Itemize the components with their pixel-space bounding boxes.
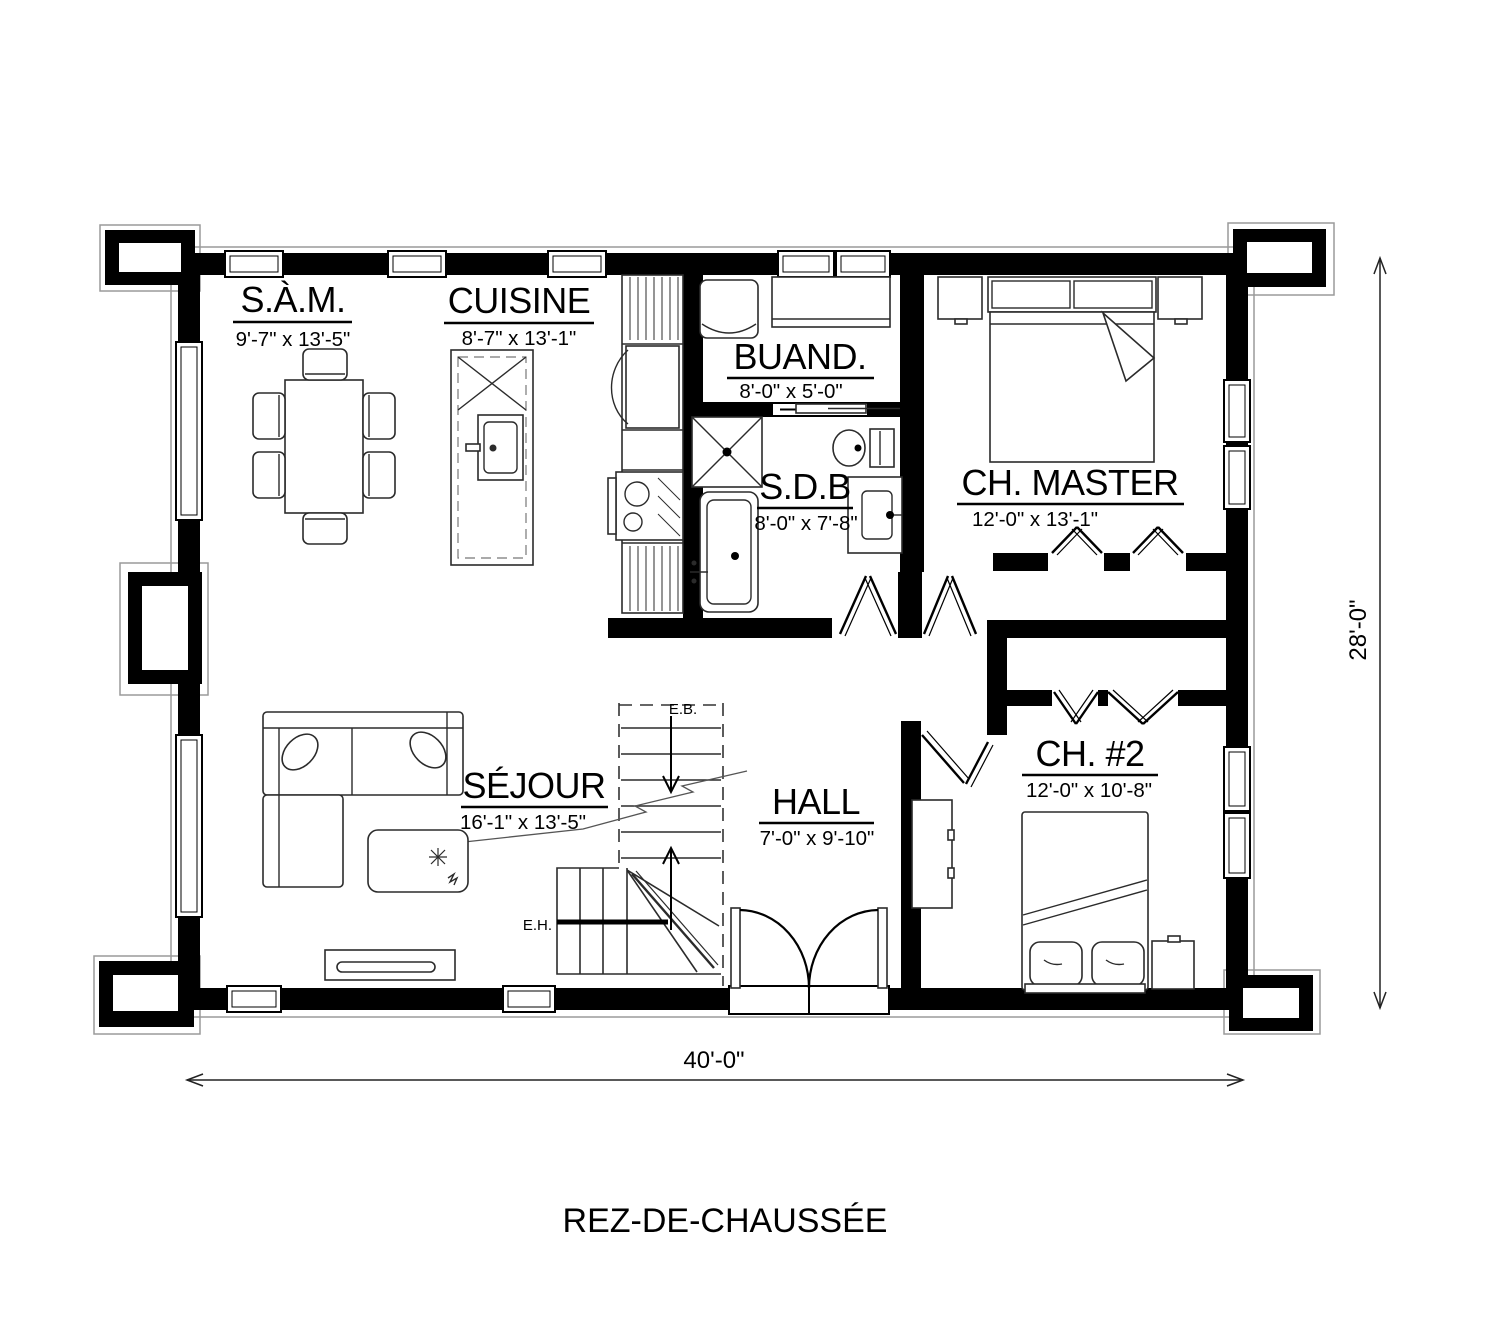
nightstand — [1158, 277, 1202, 324]
master-door-icon — [924, 576, 976, 636]
room-label-sdb: S.D.B — [759, 466, 851, 507]
width-dim-label: 40'-0" — [683, 1047, 744, 1074]
floor-plan-drawing: S.À.M. 9'-7" x 13'-5" CUISINE 8'-7" x 13… — [0, 0, 1500, 1320]
desk-icon — [912, 800, 954, 908]
bathtub-icon — [690, 492, 758, 612]
living-room-furniture — [263, 712, 468, 980]
depth-dim-label: 28'-0" — [1345, 599, 1372, 660]
stair-down-label: E.B. — [669, 701, 697, 718]
tv-console-icon — [325, 950, 455, 980]
room-label-sejour: SÉJOUR — [462, 765, 605, 806]
room-dims-ch2: 12'-0" x 10'-8" — [1026, 779, 1152, 802]
room-dims-master: 12'-0" x 13'-1" — [972, 508, 1098, 531]
window-icon — [1224, 813, 1250, 878]
closet-bifold-icon — [1054, 690, 1178, 724]
master-bedroom-furniture — [938, 277, 1202, 462]
room-dims-sdb: 8'-0" x 7'-8" — [754, 512, 857, 535]
kitchen-island — [451, 350, 533, 565]
window-icon — [836, 251, 890, 277]
window-icon — [778, 251, 834, 277]
nightstand — [938, 277, 982, 324]
room-label-sam: S.À.M. — [240, 279, 345, 320]
coffee-table-icon — [368, 830, 468, 892]
laundry-counter — [772, 277, 890, 327]
window-icon — [227, 986, 281, 1012]
toilet-icon — [833, 429, 894, 467]
staircase — [455, 703, 747, 986]
room-dims-hall: 7'-0" x 9'-10" — [760, 827, 875, 850]
room-label-buand: BUAND. — [733, 336, 866, 377]
nightstand — [1152, 936, 1194, 989]
room-dims-cuisine: 8'-7" x 13'-1" — [462, 327, 577, 350]
window-icon — [1224, 446, 1250, 509]
window-icon — [176, 342, 202, 520]
plan-title: REZ-DE-CHAUSSÉE — [563, 1202, 888, 1240]
window-icon — [1224, 380, 1250, 442]
room-dims-sejour: 16'-1" x 13'-5" — [460, 811, 586, 834]
window-icon — [225, 251, 283, 277]
room-label-hall: HALL — [772, 781, 860, 822]
stair-up-label: E.H. — [523, 917, 552, 934]
sdb-door-icon — [840, 576, 896, 636]
bed-master-icon — [988, 277, 1156, 462]
fireplace-bump — [128, 572, 202, 684]
room-dims-buand: 8'-0" x 5'-0" — [739, 380, 842, 403]
closet-bifold-icon — [1052, 527, 1183, 555]
window-icon — [388, 251, 446, 277]
ch2-door-icon — [922, 731, 993, 787]
room-label-cuisine: CUISINE — [448, 280, 591, 321]
dining-set — [253, 349, 395, 544]
room-label-ch2: CH. #2 — [1035, 733, 1144, 774]
bedroom2-furniture — [912, 800, 1194, 993]
bed2-icon — [1022, 812, 1148, 993]
width-dimension: 40'-0" — [187, 1047, 1243, 1086]
washer-icon — [700, 280, 758, 338]
shower-icon — [692, 417, 762, 487]
entry-double-door-icon — [729, 908, 889, 1014]
stove-icon — [608, 472, 683, 540]
window-icon — [548, 251, 606, 277]
room-label-master: CH. MASTER — [961, 462, 1178, 503]
kitchen-counter — [608, 275, 683, 613]
room-dims-sam: 9'-7" x 13'-5" — [236, 328, 351, 351]
depth-dimension: 28'-0" — [1345, 258, 1386, 1008]
window-icon — [176, 735, 202, 917]
floor-plan-page: S.À.M. 9'-7" x 13'-5" CUISINE 8'-7" x 13… — [0, 0, 1500, 1320]
window-icon — [503, 986, 555, 1012]
window-icon — [1224, 747, 1250, 811]
